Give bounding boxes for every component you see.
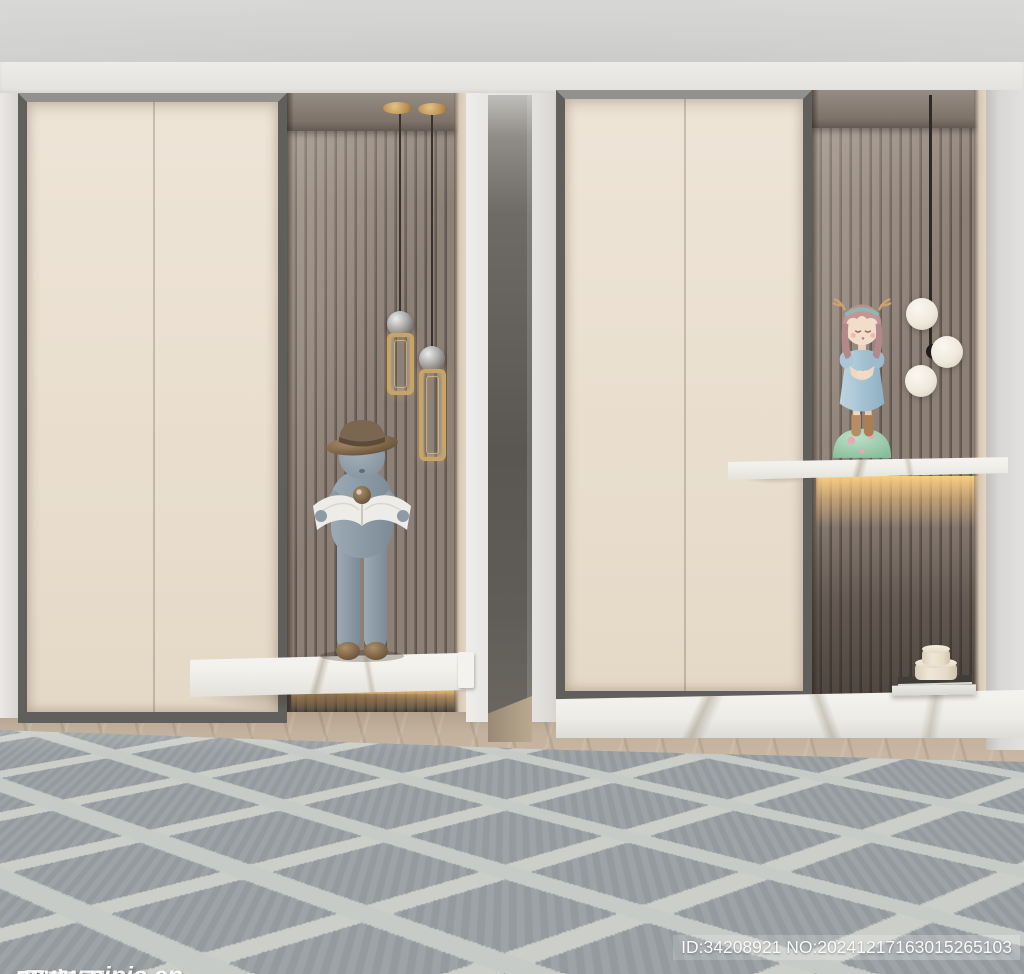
globe-light [906,298,938,330]
book [892,684,976,695]
watermark-id: ID:34208921 NO:20241217163015265103 [673,935,1020,960]
niche-edge-left [287,93,294,712]
pendant-cord [399,114,401,312]
niche-edge-right [974,90,986,694]
watermark-site-url: www.nipic.cn [24,962,183,974]
door-seam [153,102,155,712]
niche-edge-left [812,90,819,694]
left-side-wall [0,93,18,718]
pendant-ring-light [387,333,414,395]
right-wardrobe [556,90,812,702]
pendant-canopy-icon [418,103,447,115]
led-glow [816,476,982,528]
hallway-opening [488,95,532,742]
niche-shadow [812,502,986,694]
pendant-cord [431,115,433,348]
wall-column [466,93,556,722]
shelf-shadow [196,694,462,712]
right-side-wall [986,90,1024,750]
niche-edge-right [454,93,466,712]
soffit-wall [0,62,1024,93]
niche-ceiling [812,90,986,128]
globe-light [905,365,937,397]
interior-render: 昵享网www.nipic.cn ID:34208921 NO:202412171… [0,0,1024,974]
door-seam [684,99,686,691]
right-wardrobe-doors [565,99,803,691]
pendant-canopy-icon [383,102,412,114]
canister-lid [922,645,950,653]
ceiling [0,0,1024,62]
left-wardrobe-doors [27,102,278,712]
light-switch [458,652,474,688]
pendant-ring-light [419,369,446,461]
reading-figurine [300,420,422,664]
girl-figurine [828,290,896,480]
left-wardrobe [18,93,287,723]
globe-light [931,336,963,368]
hallway-floor [488,696,532,742]
